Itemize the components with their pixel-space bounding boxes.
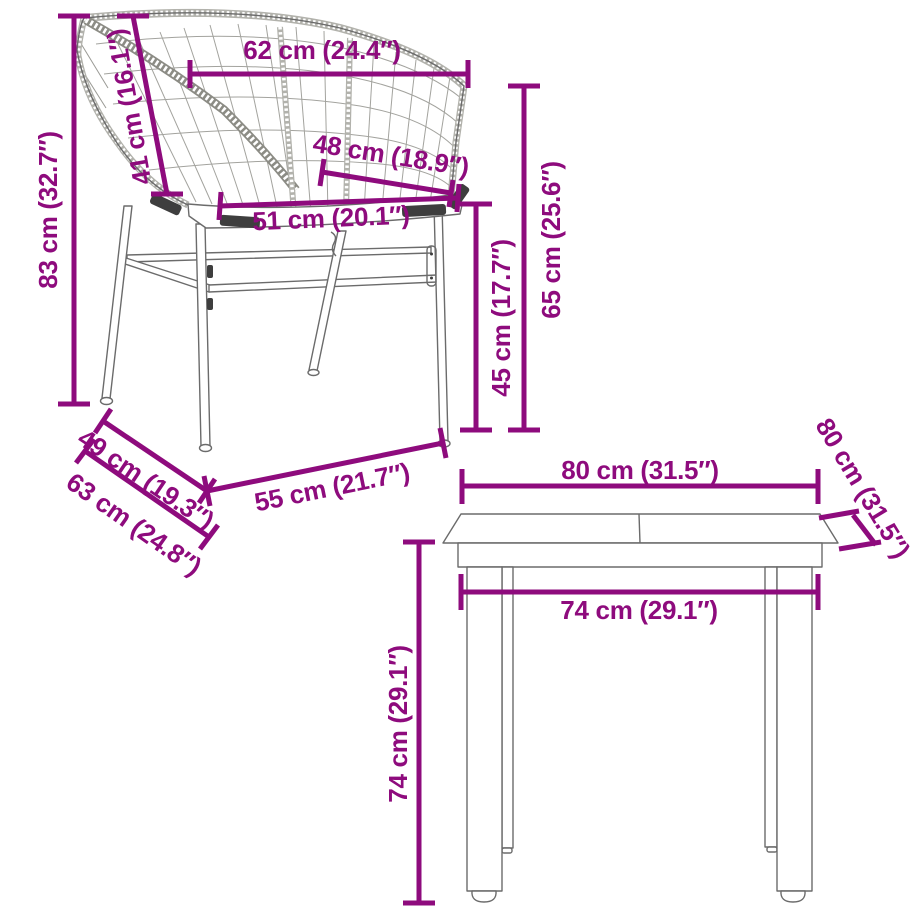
table-top-width-label: 80 cm (31.5″): [561, 457, 718, 483]
chair-rails: [125, 247, 437, 292]
chair-armrest-height-label: 65 cm (25.6″): [538, 161, 564, 318]
table-leg-span-label: 74 cm (29.1″): [560, 597, 717, 623]
chair-fittings: [207, 232, 436, 310]
chair-legs: [101, 204, 451, 452]
table-apron: [458, 543, 822, 567]
dimensions-diagram: 83 cm (32.7″) 62 cm (24.4″) 41 cm (16.1″…: [0, 0, 920, 920]
chair-seat-height-label: 45 cm (17.7″): [488, 239, 514, 396]
chair-height-label: 83 cm (32.7″): [35, 131, 61, 288]
chair-seat-width-label: 51 cm (20.1″): [252, 202, 410, 235]
table-top-split: [639, 514, 640, 543]
table-height-label: 74 cm (29.1″): [385, 645, 411, 802]
table-line-art: [443, 514, 838, 902]
chair-back-width-label: 62 cm (24.4″): [243, 37, 400, 63]
